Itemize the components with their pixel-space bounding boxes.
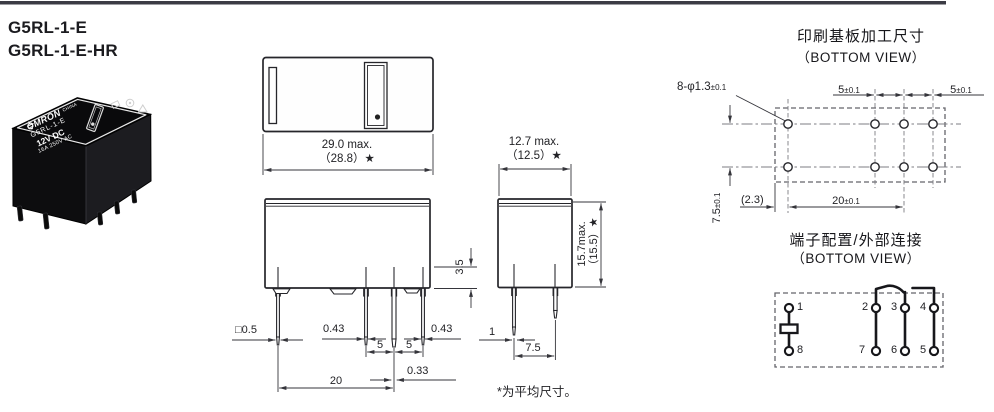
terminal-number-6: 6 [891,344,897,356]
model-name-2: G5RL-1-E-HR [8,42,118,61]
pcb-dim-5-left-tol: ±0.1 [844,86,860,95]
dim-coil-pin-size: □0.5 [235,324,257,336]
top-view-drawing [263,58,433,132]
fixed-contact [913,288,935,351]
model-name-1: G5RL-1-E [8,19,87,38]
terminal-number-3: 3 [891,301,897,313]
pcb-dim-5-right-tol: ±0.1 [956,86,972,95]
dim-pin-pitch-a: 5 [377,339,383,351]
pcb-dim-20: 20±0.1 [832,195,860,207]
pcb-hole-callout: 8-φ1.3±0.1 [677,81,726,94]
side-view-depth-max: 12.7 max. [509,136,560,149]
terminal-number-5: 5 [920,344,926,356]
pcb-section-title: 印刷基板加工尺寸 [797,29,925,46]
terminal-number-1: 1 [797,301,803,313]
pcb-dim-75-tol: ±0.1 [713,193,722,209]
front-view-drawing [265,199,430,347]
terminal-number-2: 2 [862,301,868,313]
side-view-height: 15.7max. （15.5）★ [576,217,600,270]
pcb-dim-5-right: 5±0.1 [950,84,972,96]
dim-standoff-height: 3.5 [454,259,466,274]
side-view-height-avg: （15.5）★ [588,217,600,270]
pcb-dim-75-value: 7.5 [711,208,723,223]
relay-datasheet-page: G5RL-1-E G5RL-1-E-HR OMRONCHINA G5RL-1-E… [0,0,994,412]
pcb-dim-23: (2.3) [741,194,764,206]
pcb-dim-5-left: 5±0.1 [838,84,860,96]
terminal-number-8: 8 [797,344,803,356]
movable-contact [876,286,904,351]
top-view-width-max: 29.0 max. [322,139,373,152]
pcb-hole-callout-value: 8-φ1.3 [677,81,711,93]
terminal-number-4: 4 [920,301,926,313]
side-view-height-max: 15.7max. [576,217,588,270]
pcb-hole-callout-tol: ±0.1 [711,83,727,92]
terminal-section-title: 端子配置/外部连接 [789,233,922,250]
terminal-section-subtitle: （BOTTOM VIEW） [791,252,920,267]
dim-pin-width-left: 0.43 [323,323,344,335]
terminal-number-7: 7 [859,344,865,356]
dim-pin-pitch-b: 5 [406,339,412,351]
pcb-holes [784,120,937,171]
pcb-dim-75: 7.5±0.1 [711,193,723,224]
top-view-width-avg: （28.8）★ [319,153,375,166]
dim-pin-thickness: 1 [489,326,495,338]
dim-row-span: 20 [330,375,342,387]
average-dimension-footnote: *为平均尺寸。 [497,386,577,400]
side-view-drawing [498,199,572,335]
side-view-depth-avg: （12.5）★ [506,150,562,163]
coil-symbol [781,325,798,334]
dim-pin-width-right: 0.43 [431,323,452,335]
top-rule [0,1,946,5]
dim-pin-row-pitch: 7.5 [525,342,540,354]
pcb-section-subtitle: （BOTTOM VIEW） [796,51,925,66]
dim-center-pin-width: 0.33 [407,365,428,377]
pcb-dim-20-value: 20 [832,195,844,207]
pcb-dim-20-tol: ±0.1 [844,197,860,206]
